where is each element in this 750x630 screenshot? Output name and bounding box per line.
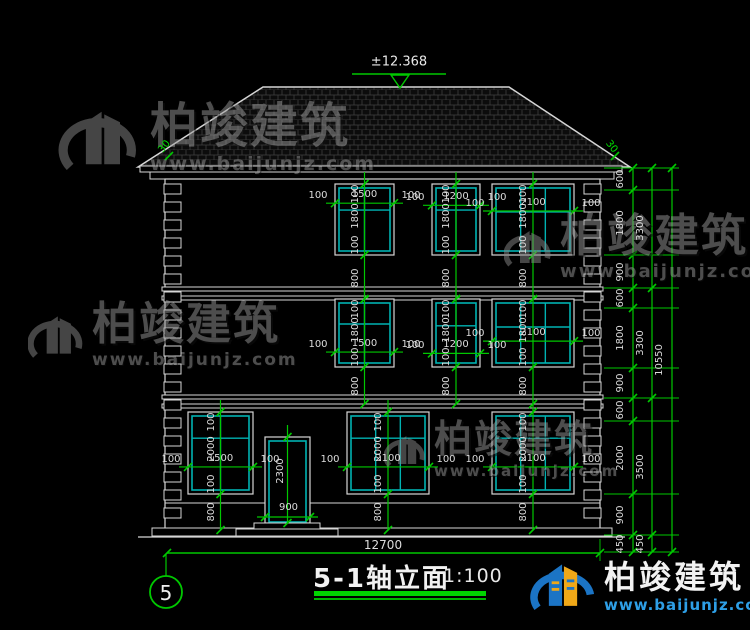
- door-width-value: 900: [279, 503, 298, 513]
- window-height-value: 1800: [351, 203, 361, 228]
- quoin-stone: [164, 436, 181, 446]
- chain-dim-value: 600: [616, 169, 626, 188]
- chain-dim-value: 900: [616, 373, 626, 392]
- spacing-value: 100: [442, 184, 452, 203]
- quoin-stone: [584, 346, 601, 356]
- sill-height-value: 800: [519, 376, 529, 395]
- chain-dim-value: 1800: [616, 325, 626, 350]
- watermark-name: 柏竣建筑: [92, 300, 298, 347]
- spacing-value: 100: [207, 412, 217, 431]
- spacing-value: 100: [519, 474, 529, 493]
- quoin-stone: [584, 310, 601, 320]
- spacing-value: 100: [320, 455, 339, 465]
- watermark-url: www.baijunjz.com: [150, 153, 376, 175]
- chain-dim-value: 900: [616, 505, 626, 524]
- spacing-value: 100: [442, 299, 452, 318]
- sill-height-value: 800: [519, 268, 529, 287]
- watermark-logo-icon: [384, 422, 426, 478]
- floor-band: [162, 404, 603, 408]
- quoin-stone: [164, 490, 181, 500]
- spacing-value: 100: [519, 412, 529, 431]
- brand-url: www.baijunjz.com: [604, 596, 750, 614]
- brand-name: 柏竣建筑: [604, 561, 750, 593]
- spacing-value: 100: [405, 193, 424, 203]
- spacing-value: 100: [487, 341, 506, 351]
- floor-band: [162, 287, 603, 291]
- watermark-url: www.baijunjz.com: [560, 261, 750, 282]
- spacing-value: 100: [465, 329, 484, 339]
- quoin-stone: [164, 202, 181, 212]
- sill-height-value: 800: [442, 268, 452, 287]
- quoin-stone: [164, 256, 181, 266]
- spacing-value: 100: [465, 199, 484, 209]
- chain-dim-value: 600: [616, 400, 626, 419]
- quoin-stone: [584, 490, 601, 500]
- spacing-value: 100: [351, 299, 361, 318]
- door-height-value: 2300: [276, 459, 286, 484]
- quoin-stone: [164, 238, 181, 248]
- window-height-value: 1800: [351, 317, 361, 342]
- chain-dim-value: 1800: [616, 210, 626, 235]
- watermark-name: 柏竣建筑: [560, 212, 750, 259]
- sill-height-value: 800: [351, 268, 361, 287]
- brand-logo-icon: [530, 552, 596, 622]
- quoin-stone: [164, 184, 181, 194]
- quoin-stone: [164, 220, 181, 230]
- window-height-value: 2000: [374, 436, 384, 461]
- quoin-stone: [164, 382, 181, 392]
- watermark-logo-icon: [56, 96, 142, 180]
- chain-dim-value: 10550: [655, 344, 665, 376]
- window-height-value: 2000: [519, 436, 529, 461]
- quoin-stone: [584, 364, 601, 374]
- sill-height-value: 800: [351, 376, 361, 395]
- watermark: 柏竣建筑 www.baijunjz.com: [56, 96, 376, 180]
- chain-dim-value: 2000: [616, 445, 626, 470]
- spacing-value: 100: [519, 184, 529, 203]
- quoin-stone: [584, 382, 601, 392]
- watermark: 柏竣建筑 www.baijunjz.com: [28, 298, 298, 372]
- floor-band: [162, 395, 603, 399]
- chain-dim-value: 3300: [636, 215, 646, 240]
- watermark-url: www.baijunjz.com: [92, 350, 298, 370]
- chain-dim-value: 3500: [636, 454, 646, 479]
- spacing-value: 100: [487, 193, 506, 203]
- sill-height-value: 800: [442, 376, 452, 395]
- spacing-value: 100: [442, 347, 452, 366]
- quoin-stone: [164, 508, 181, 518]
- quoin-stone: [584, 184, 601, 194]
- quoin-stone: [164, 472, 181, 482]
- watermark: 柏竣建筑 www.baijunjz.com: [504, 212, 750, 282]
- brand-logo: 柏竣建筑 www.baijunjz.com: [530, 552, 750, 622]
- spacing-value: 100: [351, 347, 361, 366]
- spacing-value: 100: [374, 474, 384, 493]
- window-height-value: 1800: [442, 317, 452, 342]
- quoin-stone: [584, 508, 601, 518]
- sill-height-value: 800: [374, 502, 384, 521]
- elevation-marker-triangle: [391, 75, 409, 88]
- chain-dim-value: 450: [636, 534, 646, 553]
- spacing-value: 100: [436, 455, 455, 465]
- window-height-value: 2000: [207, 436, 217, 461]
- quoin-stone: [584, 292, 601, 302]
- quoin-stone: [164, 400, 181, 410]
- quoin-stone: [164, 418, 181, 428]
- window-height-value: 1800: [519, 203, 529, 228]
- spacing-value: 100: [405, 341, 424, 351]
- spacing-value: 100: [207, 474, 217, 493]
- door-step: [236, 529, 338, 536]
- spacing-value: 100: [581, 199, 600, 209]
- spacing-value: 100: [519, 299, 529, 318]
- chain-dim-value: 900: [616, 262, 626, 281]
- chain-dim-value: 600: [616, 288, 626, 307]
- quoin-stone: [164, 274, 181, 284]
- window-height-value: 1800: [442, 203, 452, 228]
- spacing-value: 100: [161, 455, 180, 465]
- elevation-drawing-canvas: 柏竣建筑 www.baijunjz.com 柏竣建筑 www.baijunjz.…: [0, 0, 750, 630]
- spacing-value: 100: [351, 235, 361, 254]
- spacing-value: 100: [581, 455, 600, 465]
- spacing-value: 100: [308, 191, 327, 201]
- chain-dim-value: 450: [616, 534, 626, 553]
- chain-dim-value: 3300: [636, 330, 646, 355]
- spacing-value: 100: [351, 184, 361, 203]
- spacing-value: 100: [519, 235, 529, 254]
- watermark-logo-icon: [28, 298, 84, 372]
- bottom-overall-value: 12700: [364, 539, 402, 551]
- watermark-name: 柏竣建筑: [150, 101, 376, 151]
- quoin-stone: [584, 400, 601, 410]
- sill-height-value: 800: [207, 502, 217, 521]
- axis-bubble-number: 5: [160, 583, 173, 603]
- spacing-value: 100: [581, 329, 600, 339]
- spacing-value: 100: [374, 412, 384, 431]
- spacing-value: 100: [519, 347, 529, 366]
- spacing-value: 100: [465, 455, 484, 465]
- sill-height-value: 800: [519, 502, 529, 521]
- spacing-value: 100: [308, 340, 327, 350]
- spacing-value: 100: [442, 235, 452, 254]
- window-height-value: 1800: [519, 317, 529, 342]
- elevation-value: ±12.368: [371, 56, 427, 69]
- watermark: 柏竣建筑 www.baijunjz.com: [384, 420, 619, 480]
